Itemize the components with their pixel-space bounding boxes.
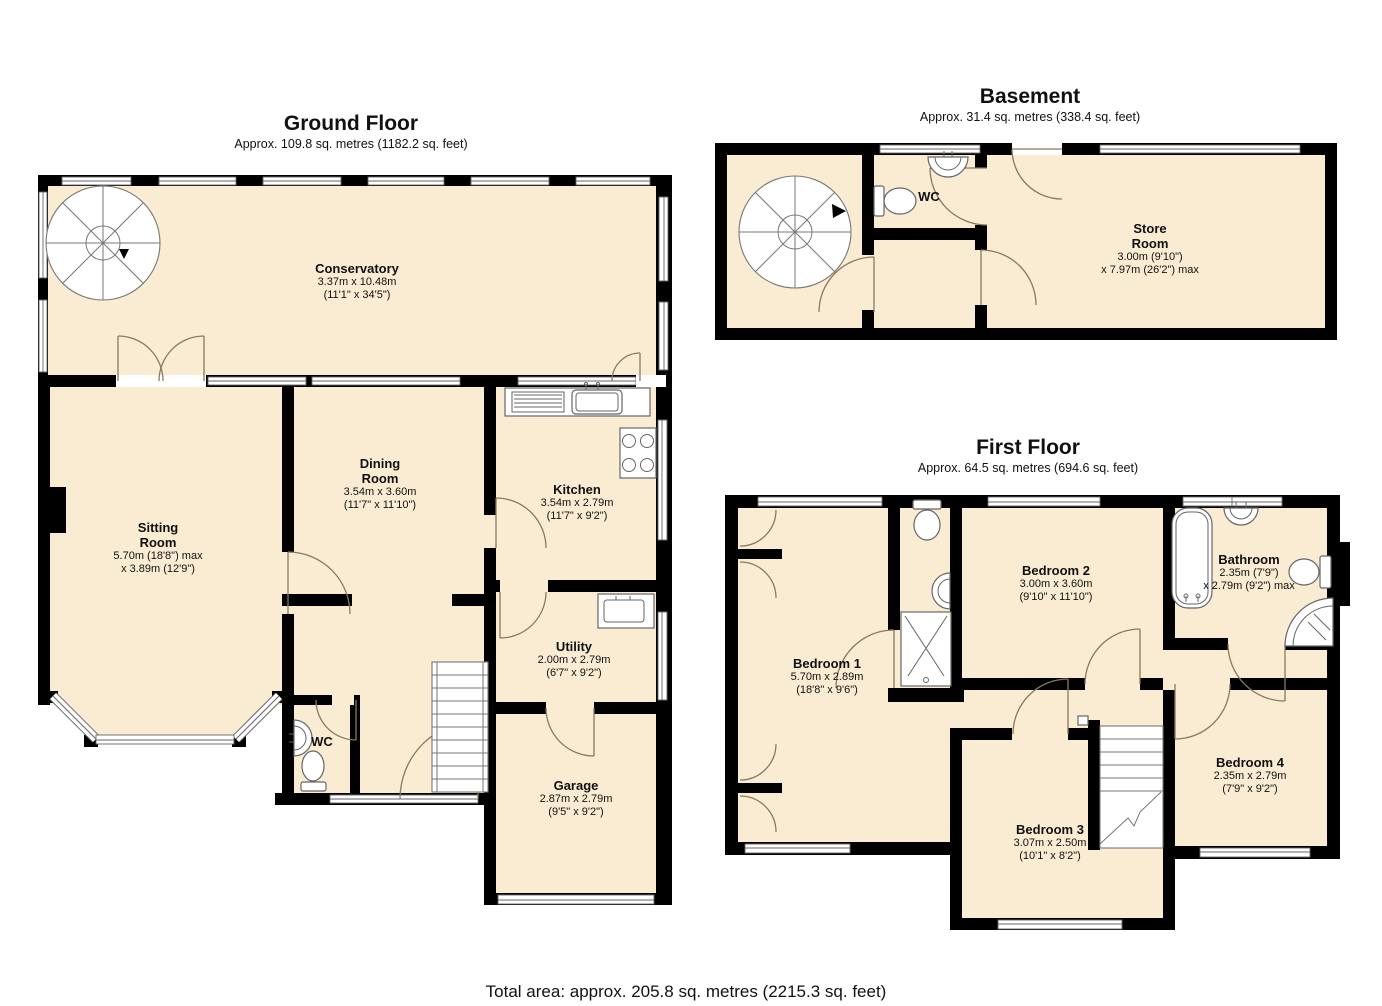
bathroom-toilet: [1289, 556, 1331, 588]
shower-tray: [901, 612, 951, 686]
wc-toilet: [874, 186, 916, 216]
staircase: [432, 662, 488, 792]
garage-door: [498, 895, 654, 904]
basement-plan: [715, 143, 1337, 340]
floorplan-drawing: [0, 0, 1382, 1006]
bath: [1172, 508, 1212, 608]
wc-toilet: [301, 751, 326, 791]
front-door: [330, 795, 478, 803]
hob: [620, 428, 656, 478]
first-floor-plan: [725, 495, 1350, 930]
spiral-staircase: [739, 176, 851, 288]
spiral-staircase: [46, 186, 160, 300]
ground-floor-plan: [38, 175, 672, 905]
kitchen-sink: [505, 383, 650, 417]
ensuite-toilet: [913, 500, 941, 540]
first-room-fills: [731, 502, 1333, 924]
utility-sink: [598, 594, 654, 628]
floorplan-page: Ground Floor Approx. 109.8 sq. metres (1…: [0, 0, 1382, 1006]
